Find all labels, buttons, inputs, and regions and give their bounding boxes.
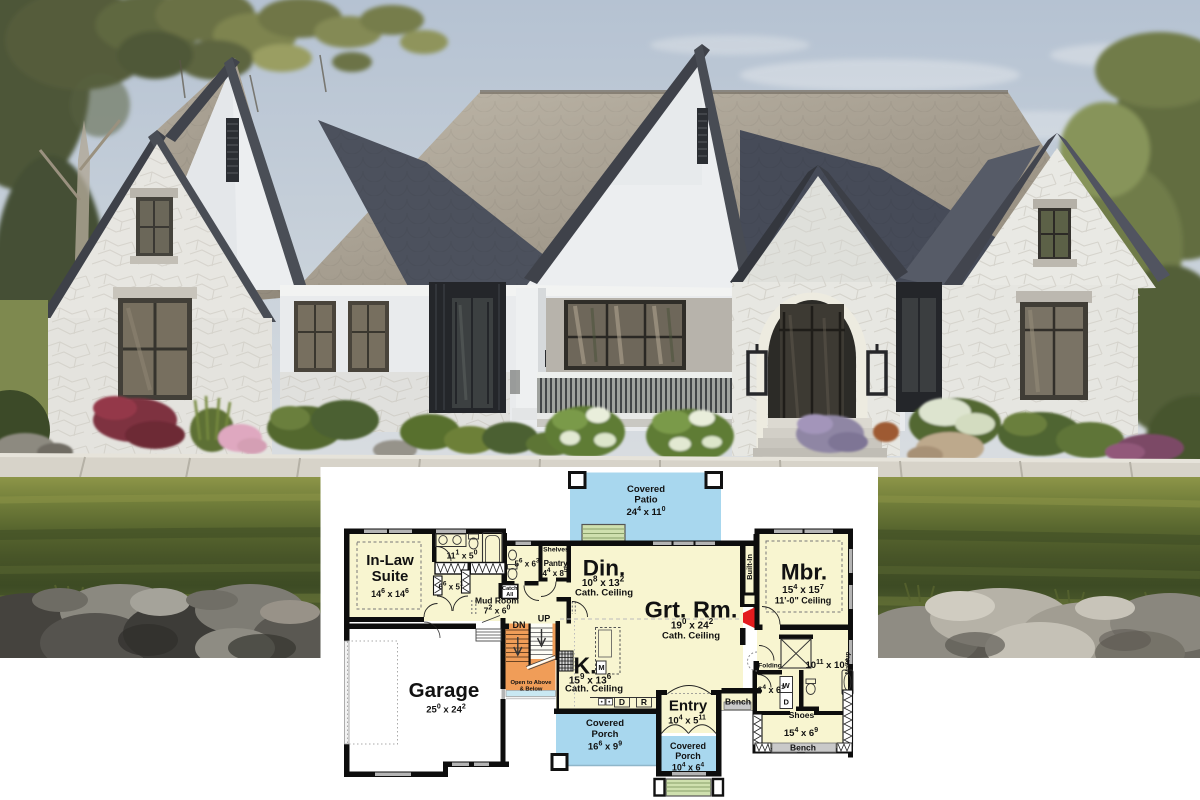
svg-text:72 x 60: 72 x 60: [484, 605, 511, 616]
svg-text:Bench: Bench: [725, 697, 751, 707]
svg-text:11'-0" Ceiling: 11'-0" Ceiling: [775, 596, 831, 606]
svg-text:1011 x 103: 1011 x 103: [805, 659, 848, 671]
svg-text:Suite: Suite: [372, 568, 409, 585]
svg-text:Patio: Patio: [634, 495, 657, 506]
svg-text:244 x 110: 244 x 110: [627, 506, 666, 518]
svg-text:Shelves: Shelves: [543, 547, 569, 554]
svg-text:Mud Room: Mud Room: [475, 596, 519, 606]
svg-text:Grt. Rm.: Grt. Rm.: [645, 597, 738, 623]
svg-text:Mbr.: Mbr.: [781, 560, 827, 585]
svg-text:154 x 69: 154 x 69: [784, 727, 818, 739]
svg-text:111 x 50: 111 x 50: [447, 550, 478, 561]
svg-text:UP: UP: [538, 614, 551, 624]
svg-text:W: W: [783, 681, 791, 690]
svg-text:Folding: Folding: [758, 663, 781, 670]
svg-text:Garage: Garage: [409, 679, 480, 702]
svg-text:Covered: Covered: [670, 741, 706, 751]
svg-text:154 x 157: 154 x 157: [782, 582, 824, 596]
svg-text:Entry: Entry: [669, 698, 708, 715]
svg-text:Makeup: Makeup: [846, 651, 852, 674]
svg-text:Cath. Ceiling: Cath. Ceiling: [662, 631, 720, 642]
svg-text:104 x 64: 104 x 64: [672, 762, 705, 773]
svg-text:250 x 242: 250 x 242: [426, 704, 466, 716]
svg-text:D: D: [619, 697, 625, 707]
svg-text:146 x 146: 146 x 146: [371, 588, 409, 599]
svg-text:& Below: & Below: [520, 687, 543, 693]
svg-text:Covered: Covered: [627, 484, 665, 495]
svg-text:D: D: [783, 698, 789, 707]
svg-text:In-Law: In-Law: [366, 552, 414, 569]
svg-text:Built-In: Built-In: [745, 554, 754, 580]
svg-text:Shoes: Shoes: [789, 710, 815, 720]
svg-text:64 x 61: 64 x 61: [757, 684, 785, 695]
svg-text:M: M: [598, 663, 604, 672]
svg-text:Porch: Porch: [675, 751, 701, 761]
svg-text:Open to Above: Open to Above: [510, 680, 552, 686]
svg-text:Cath. Ceiling: Cath. Ceiling: [565, 684, 623, 695]
svg-text:166 x 99: 166 x 99: [588, 741, 622, 753]
svg-text:Porch: Porch: [592, 729, 619, 740]
svg-text:Cath. Ceiling: Cath. Ceiling: [575, 588, 633, 599]
svg-text:Covered: Covered: [586, 718, 624, 729]
svg-text:R: R: [641, 697, 647, 707]
svg-text:Bench: Bench: [790, 743, 816, 753]
svg-text:DN: DN: [513, 620, 526, 630]
